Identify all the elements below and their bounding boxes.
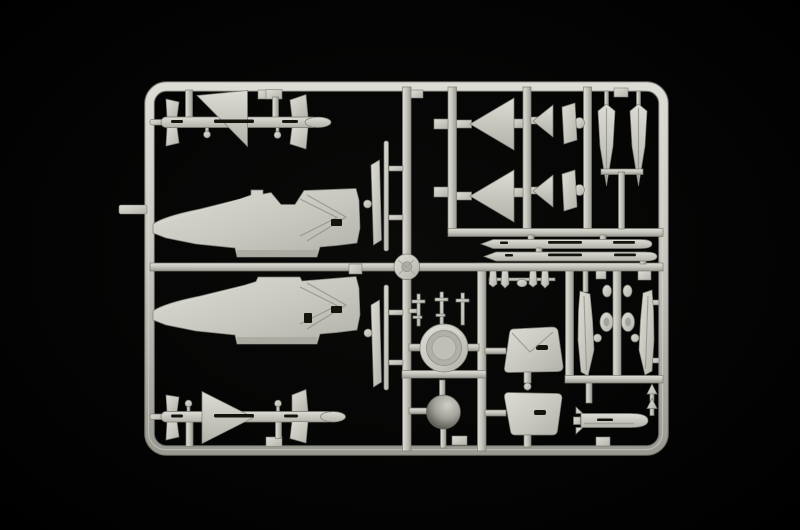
missile-tailfin-down bbox=[166, 128, 179, 147]
missile-canard-down bbox=[290, 422, 308, 444]
underwing-pod bbox=[574, 383, 649, 434]
outer-stub bbox=[119, 205, 147, 214]
stabilator-blade-2 bbox=[562, 170, 585, 211]
edge-on-wing-upper bbox=[364, 141, 404, 251]
missile-canard-up bbox=[292, 390, 308, 412]
missile-nose bbox=[321, 412, 346, 422]
gate-disc bbox=[394, 254, 420, 280]
strut-cluster bbox=[489, 271, 555, 288]
small-fin-2 bbox=[531, 175, 553, 207]
mast-parts bbox=[409, 292, 469, 326]
missile-with-delta-wing-upper bbox=[150, 90, 331, 150]
large-delta-fin-1 bbox=[457, 98, 515, 150]
fuselage-half-lower bbox=[153, 277, 360, 345]
slender-rocket-1 bbox=[481, 235, 652, 249]
gear-door-right bbox=[631, 290, 659, 375]
missile-canard-down bbox=[290, 128, 308, 150]
dart-part-2 bbox=[647, 399, 657, 416]
small-fin-1 bbox=[531, 105, 553, 137]
large-delta-fin-2 bbox=[457, 170, 515, 222]
stabilator-blade-1 bbox=[562, 103, 585, 144]
missile-nose bbox=[305, 117, 331, 127]
edge-on-wing-lower bbox=[364, 285, 403, 390]
intake-panel-lower bbox=[485, 372, 562, 447]
photo-model-kit-sprue: Photograph of a single light-grey inject… bbox=[0, 0, 800, 530]
exhaust-ring bbox=[409, 324, 479, 372]
sprue-photo-canvas bbox=[0, 0, 800, 530]
slender-rocket-2 bbox=[484, 248, 657, 264]
missile-tailfin-up bbox=[166, 99, 179, 117]
missile-canard-up bbox=[290, 95, 308, 118]
missile-with-delta-wing-lower bbox=[150, 390, 346, 447]
fuselage-half-upper bbox=[153, 189, 360, 258]
intake-panel-upper bbox=[485, 327, 563, 373]
gear-door-left bbox=[578, 271, 602, 376]
missile-tailfin-up bbox=[166, 395, 179, 412]
missile-tailfin-down bbox=[166, 422, 179, 441]
